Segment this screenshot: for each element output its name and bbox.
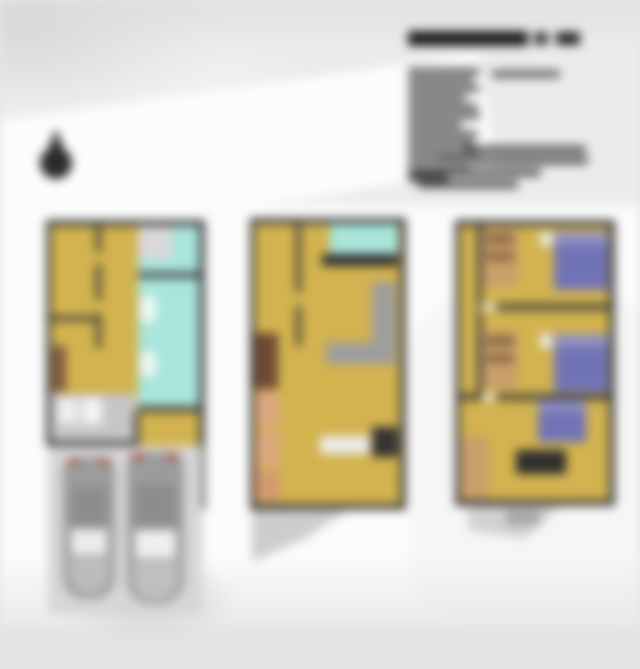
car-taillight [131,454,144,459]
paragraph-line-blur [408,77,474,83]
paragraph-line-blur [408,140,474,146]
plan1-bath-fixture [140,296,156,322]
title-text-blur [556,32,580,45]
plan1-wall [46,220,51,446]
plan3-dresser-stripe [486,234,514,244]
car-windshield [71,529,107,555]
plan3-wall [455,500,615,506]
plan2-cabinet-tan [254,392,280,428]
plan2-bath-cyan [330,224,398,254]
plan3-nightstand [540,232,552,246]
plan3-dresser-stripe [486,354,514,363]
plan3-wall [455,394,615,400]
plan1-wall [96,226,101,252]
plan3-nightstand [540,334,552,348]
plan3-wardrobe-tan [459,436,489,500]
paragraph-line-blur [409,169,541,176]
paragraph-line-blur [408,131,478,137]
plan2-cabinet-tan [254,432,280,466]
car-roof [135,484,176,528]
paragraph-line-blur [408,104,478,110]
plan1-wall [96,264,101,300]
paragraph-line-blur [408,95,466,101]
plan1-closet-cyan [172,225,200,259]
title-text-blur [534,32,548,45]
plan3-dresser-stripe [486,252,514,261]
car-taillight [99,459,111,464]
car-hood [69,557,109,593]
plan2-wall [296,306,301,346]
plan1-wall [50,316,96,321]
plan3-wall [609,220,615,506]
plan3-door-gap [482,394,496,400]
paragraph-line-blur [408,113,480,119]
paragraph-line-blur [436,157,588,164]
plan3-dresser-stripe [486,336,514,346]
plan2-sofa [372,282,396,344]
paragraph-line-blur [408,122,462,128]
plan2-unit-dark [372,427,398,457]
plan2-counter-dark [322,254,398,266]
paragraph-line-blur [418,181,518,188]
plan3-step-block [506,510,540,525]
plan3-door-gap [482,304,496,310]
plan2-wall [250,504,406,510]
car-roof [71,487,107,527]
plan2-wall [250,218,406,224]
paragraph-line-blur [408,86,480,92]
north-arrow-circle [40,147,72,179]
plan1-wall [138,272,200,278]
plan3-bed-pillow [538,400,586,411]
paragraph-line-blur [464,146,586,153]
plan2-cabinet-tan [254,470,280,502]
plan2-sofa [326,342,396,364]
subtitle-line-blur [492,70,560,78]
car-hood [133,560,178,600]
plan1-appliance [58,398,78,424]
plan3-wall [455,220,460,506]
plan3-bed-pillow [554,232,608,245]
plan1-bathroom-cyan [138,259,200,409]
paragraph-line-blur [408,68,480,74]
title-text-blur [408,31,528,46]
plan2-wall [250,218,255,510]
plan2-wall [296,224,301,292]
plan3-wall [477,312,482,394]
car-windshield [135,530,176,558]
plan1-bath-fixture [140,352,156,376]
plan1-wall [46,220,204,226]
plan1-wall [96,314,101,348]
plan3-bed-pillow [554,334,608,347]
plan2-wall [400,218,406,510]
plan3-wall [477,226,482,304]
plan2-entry-steps [252,510,348,562]
plan1-appliance [82,398,102,424]
car-taillight [166,454,179,459]
plan1-cabinet-brown [52,346,66,392]
car-taillight [67,459,79,464]
floor-plan-sheet [0,0,640,669]
plan3-wall [478,304,615,310]
plan1-wall [138,406,204,412]
plan3-desk-dark [516,450,566,474]
plan2-table-white [320,436,370,454]
plan2-cabinet-darkbrown [254,333,278,389]
